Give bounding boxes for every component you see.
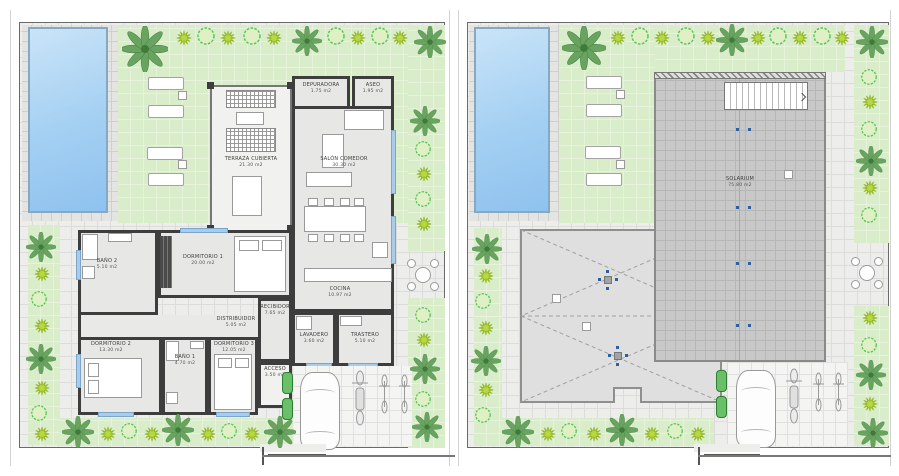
garden-table-set <box>406 258 440 292</box>
room-label-dorm1: DORMITORIO 1 20.00 m2 <box>174 254 232 266</box>
room-label-bano2: BAÑO 2 5.10 m2 <box>84 258 130 270</box>
window <box>76 250 81 280</box>
window <box>216 412 250 417</box>
bed <box>84 358 142 398</box>
bush-icon <box>860 120 878 138</box>
solarium-dot <box>748 324 751 327</box>
garden-table-set <box>850 256 884 290</box>
rear-window <box>305 431 335 438</box>
palm-tree-icon <box>856 360 886 390</box>
palm-tree-icon <box>162 414 194 446</box>
windshield <box>741 387 771 396</box>
bush-icon <box>266 30 282 46</box>
bush-icon <box>416 332 432 348</box>
washbasin <box>108 233 132 242</box>
entry-planter <box>716 396 727 418</box>
palm-tree-icon <box>414 26 446 58</box>
room-name: DORMITORIO 3 <box>206 341 262 348</box>
terrace-lounger <box>232 176 262 216</box>
sun-lounger <box>586 104 622 117</box>
drain-grate <box>604 276 612 284</box>
palm-tree-icon <box>606 414 638 446</box>
bush-icon <box>610 30 626 46</box>
bush-icon <box>812 26 832 46</box>
gate-opening <box>694 444 760 452</box>
room-label-recibidor: RECIBIDOR 7.65 m2 <box>257 304 293 316</box>
plot-edge-line <box>449 10 450 466</box>
bush-icon <box>690 426 706 442</box>
solarium-stairs <box>724 82 808 110</box>
skylight <box>552 294 561 303</box>
sun-lounger <box>147 147 183 160</box>
room-area: 20.00 m2 <box>174 261 232 267</box>
bush-icon <box>220 422 238 440</box>
solarium-dot <box>736 262 739 265</box>
garden-chair <box>407 259 416 268</box>
bush-icon <box>370 26 390 46</box>
solarium-joint-line <box>739 74 740 360</box>
washbasin <box>190 341 204 349</box>
bush-icon <box>414 190 432 208</box>
bush-icon <box>326 26 346 46</box>
sun-lounger <box>586 173 622 186</box>
ground-floor-plan-panel: TERRAZA CUBIERTA 21.30 m2 DEPURADORA 1.7… <box>10 10 450 468</box>
bush-icon <box>478 382 494 398</box>
wardrobe <box>160 236 172 288</box>
bush-icon <box>414 390 432 408</box>
bicycle-topview <box>378 374 391 414</box>
sun-lounger <box>586 76 622 89</box>
drain-dot <box>625 354 628 357</box>
solarium-dot <box>748 262 751 265</box>
palm-tree-icon <box>716 24 748 56</box>
bush-icon <box>666 422 684 440</box>
bush-icon <box>414 306 432 324</box>
room-area: 75.80 m2 <box>708 183 772 189</box>
dining-chair <box>324 198 334 206</box>
bush-icon <box>700 30 716 46</box>
dining-chair <box>340 234 350 242</box>
window <box>391 216 396 264</box>
roof-plan-panel: SOLARIUM 75.80 m2 <box>458 10 891 468</box>
palm-tree-icon <box>562 26 606 70</box>
drain-dot <box>616 346 619 349</box>
palm-tree-icon <box>26 344 56 374</box>
car-topview <box>736 370 776 448</box>
bush-icon <box>242 26 262 46</box>
bush-icon <box>644 426 660 442</box>
skylight <box>582 322 591 331</box>
roof-drain <box>598 270 618 290</box>
windshield <box>305 389 335 398</box>
bush-icon <box>654 30 670 46</box>
solarium-dot <box>736 324 739 327</box>
rear-window <box>741 429 771 436</box>
palm-tree-icon <box>410 354 440 384</box>
solarium-dot <box>748 128 751 131</box>
storage-shelf <box>340 316 362 326</box>
palm-tree-icon <box>858 418 888 448</box>
drain-dot <box>608 354 611 357</box>
bed <box>214 354 252 410</box>
window <box>98 412 134 417</box>
palm-tree-icon <box>410 106 440 136</box>
window <box>391 130 396 194</box>
toilet <box>166 392 178 404</box>
bush-icon <box>200 426 216 442</box>
bush-icon <box>392 30 408 46</box>
room-area: 4.70 m2 <box>162 361 208 367</box>
pillow <box>88 363 99 377</box>
stairs-direction-arrow <box>798 93 806 101</box>
solarium-dot <box>736 206 739 209</box>
bush-icon <box>860 336 878 354</box>
garden-chair <box>407 282 416 291</box>
bush-icon <box>792 30 808 46</box>
entry-planter <box>716 370 727 392</box>
bicycle-topview <box>812 372 825 412</box>
column <box>207 82 214 89</box>
bush-icon <box>586 426 602 442</box>
room-area: 7.65 m2 <box>257 311 293 317</box>
palm-tree-icon <box>26 232 56 262</box>
bush-icon <box>350 30 366 46</box>
bush-icon <box>414 140 432 158</box>
bush-icon <box>560 422 578 440</box>
solarium-deck <box>654 72 826 362</box>
swimming-pool <box>474 27 550 213</box>
bicycle-topview <box>832 372 845 412</box>
drain-dot <box>606 287 609 290</box>
skylight <box>784 170 793 179</box>
bush-icon <box>176 30 192 46</box>
dining-chair <box>324 234 334 242</box>
room-area: 5.10 m2 <box>84 265 130 271</box>
motorcycle-topview <box>784 368 804 426</box>
dining-table <box>304 206 366 232</box>
room-label-depuradora: DEPURADORA 1.75 m2 <box>294 82 348 94</box>
floorplan-sheet: TERRAZA CUBIERTA 21.30 m2 DEPURADORA 1.7… <box>0 0 899 476</box>
room-area: 21.30 m2 <box>210 163 292 169</box>
room-label-solarium: SOLARIUM 75.80 m2 <box>708 176 772 188</box>
garden-table <box>859 265 875 281</box>
kitchen-island <box>372 242 388 258</box>
drain-dot <box>598 278 601 281</box>
room-label-cocina: COCINA 10.97 m2 <box>308 286 372 298</box>
sun-lounger <box>585 146 621 159</box>
sofa <box>306 172 352 187</box>
room-area: 30.30 m2 <box>306 163 382 169</box>
kitchen-counter <box>304 268 392 282</box>
bush-icon <box>196 26 216 46</box>
dining-chair <box>340 198 350 206</box>
bush-icon <box>100 426 116 442</box>
street-line <box>262 455 455 457</box>
bush-icon <box>768 26 788 46</box>
terrace-furniture <box>236 112 264 125</box>
room-label-dorm2: DORMITORIO 2 13.30 m2 <box>82 341 140 353</box>
side-table <box>616 160 625 169</box>
bush-icon <box>630 26 650 46</box>
bush-icon <box>30 404 48 422</box>
bed <box>234 236 286 292</box>
bush-icon <box>862 180 878 196</box>
palm-tree-icon <box>472 234 502 264</box>
dining-chair <box>354 234 364 242</box>
bush-icon <box>34 426 50 442</box>
garden-chair <box>874 280 883 289</box>
solarium-dot <box>748 206 751 209</box>
palm-tree-icon <box>62 416 94 448</box>
roof-drain <box>608 346 628 366</box>
shower <box>82 234 98 260</box>
bush-icon <box>862 94 878 110</box>
window <box>76 354 81 388</box>
pillow <box>235 358 249 368</box>
bush-icon <box>862 310 878 326</box>
room-label-lavadero: LAVADERO 3.60 m2 <box>292 332 336 344</box>
side-table <box>178 91 187 100</box>
room-name: RECIBIDOR <box>257 304 293 311</box>
motorcycle-topview <box>350 370 370 428</box>
terrace-table <box>226 90 276 108</box>
drain-dot <box>606 270 609 273</box>
bush-icon <box>220 30 236 46</box>
pillow <box>239 240 259 251</box>
street-line <box>698 455 891 457</box>
room-area: 1.75 m2 <box>294 89 348 95</box>
dining-chair <box>308 234 318 242</box>
room-area: 10.97 m2 <box>308 293 372 299</box>
bush-icon <box>860 68 878 86</box>
bush-icon <box>244 426 260 442</box>
drain-grate <box>614 352 622 360</box>
washing-machine <box>296 316 312 330</box>
bush-icon <box>34 318 50 334</box>
plot-edge-line <box>458 10 459 466</box>
room-area: 12.05 m2 <box>206 348 262 354</box>
room-label-terraza: TERRAZA CUBIERTA 21.30 m2 <box>210 156 292 168</box>
palm-tree-icon <box>292 26 322 56</box>
palm-tree-icon <box>122 26 168 72</box>
room-label-trastero: TRASTERO 5.10 m2 <box>338 332 392 344</box>
garden-table <box>415 267 431 283</box>
bush-icon <box>34 266 50 282</box>
room-label-aseo: ASEO 1.95 m2 <box>354 82 392 94</box>
bush-icon <box>474 292 492 310</box>
bush-icon <box>30 290 48 308</box>
room-label-salon: SALÓN COMEDOR 30.30 m2 <box>306 156 382 168</box>
window <box>180 228 228 233</box>
palm-tree-icon <box>264 416 296 448</box>
palm-tree-icon <box>856 146 886 176</box>
plot-edge-line <box>890 10 891 466</box>
sun-lounger <box>148 105 184 118</box>
garden-chair <box>851 257 860 266</box>
pillow <box>218 358 232 368</box>
car-topview <box>300 372 340 450</box>
solarium-railing <box>654 72 826 79</box>
bush-icon <box>750 30 766 46</box>
bush-icon <box>676 26 696 46</box>
bush-icon <box>540 426 556 442</box>
bush-icon <box>120 422 138 440</box>
bush-icon <box>34 380 50 396</box>
palm-tree-icon <box>471 346 501 376</box>
entry-planter <box>282 372 293 394</box>
garden-chair <box>851 280 860 289</box>
bush-icon <box>860 206 878 224</box>
bush-icon <box>474 406 492 424</box>
palm-tree-icon <box>856 26 888 58</box>
room-area: 13.30 m2 <box>82 348 140 354</box>
pillow <box>88 380 99 394</box>
dining-chair <box>354 198 364 206</box>
swimming-pool <box>28 27 108 213</box>
palm-tree-icon <box>502 416 534 448</box>
garden-chair <box>874 257 883 266</box>
solarium-dot <box>736 128 739 131</box>
room-label-dorm3: DORMITORIO 3 12.05 m2 <box>206 341 262 353</box>
bush-icon <box>478 320 494 336</box>
bush-icon <box>416 166 432 182</box>
bush-icon <box>834 30 850 46</box>
palm-tree-icon <box>412 412 442 442</box>
side-table <box>178 160 187 169</box>
bush-icon <box>862 396 878 412</box>
room-area: 5.10 m2 <box>338 339 392 345</box>
garden-chair <box>430 282 439 291</box>
room-area: 1.95 m2 <box>354 89 392 95</box>
garden-chair <box>430 259 439 268</box>
sideboard <box>344 110 384 130</box>
bush-icon <box>416 216 432 232</box>
sun-lounger <box>148 173 184 186</box>
drain-dot <box>616 363 619 366</box>
room-area: 3.60 m2 <box>292 339 336 345</box>
pillow <box>262 240 282 251</box>
room-label-bano1: BAÑO 1 4.70 m2 <box>162 354 208 366</box>
dining-chair <box>308 198 318 206</box>
drain-dot <box>615 278 618 281</box>
terrace-table <box>226 128 276 152</box>
bush-icon <box>478 268 494 284</box>
plot-edge-line <box>10 10 11 466</box>
bush-icon <box>144 426 160 442</box>
sun-lounger <box>148 77 184 90</box>
side-table <box>616 90 625 99</box>
